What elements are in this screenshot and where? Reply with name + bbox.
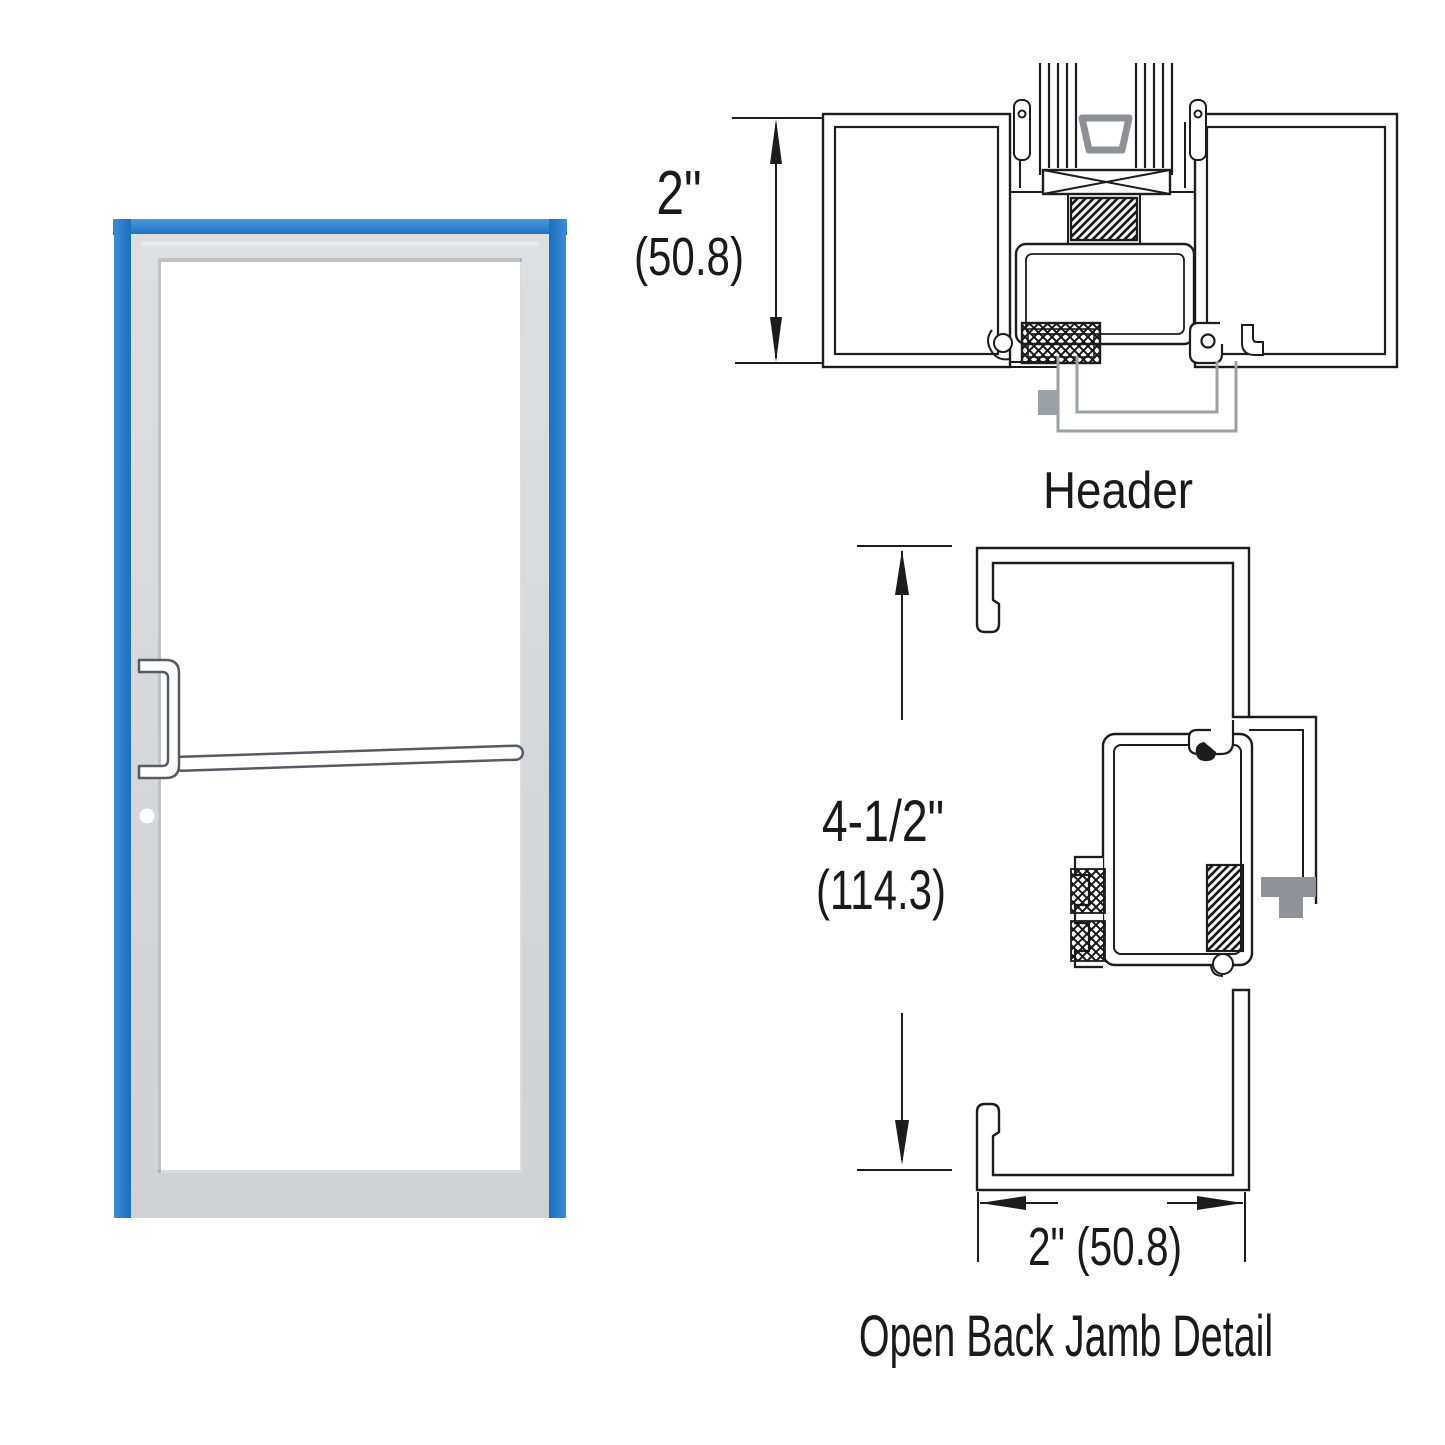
weatherstrip-tab (1038, 390, 1058, 415)
glazing-gasket-right (1190, 100, 1206, 160)
mounting-clip (1261, 877, 1316, 918)
glazing-chair (1043, 170, 1170, 194)
arrow-up-icon (770, 119, 782, 164)
jamb-height-dim-mm: (114.3) (816, 862, 946, 918)
header-dim-mm: (50.8) (634, 230, 744, 284)
jamb-detail-label: Open Back Jamb Detail (859, 1308, 1273, 1366)
arrow-up-icon (895, 550, 909, 595)
arrow-down-icon (895, 1120, 909, 1165)
thermal-break-hatch (1071, 198, 1137, 240)
lock-cylinder-dot (140, 809, 155, 824)
header-label: Header (1043, 465, 1193, 517)
arrow-left-icon (980, 1196, 1026, 1210)
jamb-bottom-channel (977, 990, 1249, 1190)
header-dimension-2in (732, 118, 822, 363)
jamb-height-dim-inches: 4-1/2" (822, 793, 944, 851)
glazing-gasket-left (1014, 100, 1030, 160)
setting-block (1082, 118, 1129, 150)
arrow-down-icon (770, 317, 782, 362)
push-bar (175, 745, 523, 771)
open-back-jamb-drawing (790, 520, 1445, 1420)
jamb-top-channel (977, 548, 1249, 717)
pull-handle (139, 660, 179, 778)
header-dim-inches: 2" (656, 163, 701, 225)
jamb-face-plate (1249, 717, 1316, 918)
weatherstrip-pocket-left (1071, 857, 1105, 967)
jamb-width-dim: 2" (50.8) (1028, 1220, 1182, 1274)
arrow-right-icon (1197, 1196, 1243, 1210)
